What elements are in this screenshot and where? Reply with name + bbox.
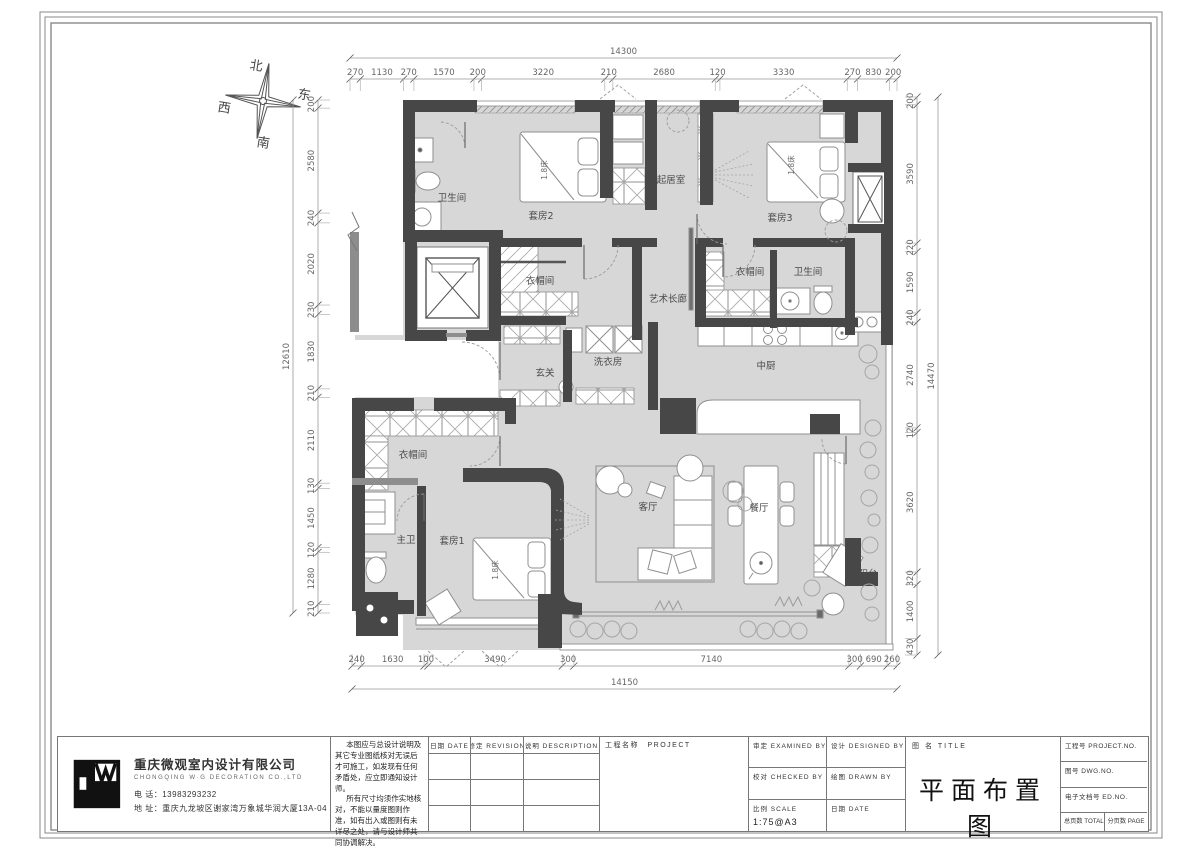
svg-text:270: 270 (347, 68, 363, 78)
ed-no-cell: 电子文档号 ED.NO. (1061, 788, 1147, 813)
total-page-cell: 总页数 TOTAL PAGE (1061, 813, 1105, 831)
rev-header-date: 日期 DATE (429, 737, 470, 754)
room-label: 主卫 (396, 534, 416, 546)
svg-text:830: 830 (865, 68, 881, 78)
svg-text:200: 200 (470, 68, 486, 78)
rev-col-description: 说明 DESCRIPTION (524, 737, 599, 831)
elevator-lobby-floor (352, 340, 498, 397)
rev-col-date: 日期 DATE (429, 737, 471, 831)
rev-col-revision: 修定 REVISION (471, 737, 524, 831)
room-label: 起居室 (657, 174, 686, 186)
suite3-chair (820, 199, 844, 223)
svg-text:120: 120 (307, 542, 317, 558)
company-address: 地 址：重庆九龙坡区谢家湾万象城华润大厦13A-04 (134, 803, 322, 814)
svg-text:2680: 2680 (653, 68, 675, 78)
svg-text:1570: 1570 (433, 68, 455, 78)
svg-text:14150: 14150 (611, 678, 638, 688)
svg-text:2740: 2740 (906, 364, 916, 386)
svg-text:1590: 1590 (906, 271, 916, 293)
svg-text:100: 100 (418, 655, 434, 665)
plan: 卫生间 套房2 衣帽间 起居室 套房3 衣帽间 卫生间 艺术长廊 洗衣房 玄关 … (282, 47, 942, 693)
scale-label: 比例 SCALE (753, 806, 797, 813)
rev-header-revision: 修定 REVISION (471, 737, 523, 754)
compass-south-label: 南 (256, 134, 271, 152)
room-label: 套房3 (767, 212, 792, 224)
bottom-glass-wall (560, 644, 893, 650)
drawing-title: 平面布置图 (906, 771, 1060, 843)
svg-text:14300: 14300 (610, 47, 637, 57)
rev-empty-row (471, 754, 523, 780)
date-cell: 日期 DATE (827, 800, 905, 831)
room-label: 卫生间 (438, 192, 467, 204)
svg-text:260: 260 (884, 655, 900, 665)
svg-text:2020: 2020 (307, 253, 317, 275)
approval-block: 审定 EXAMINED BY 设计 DESIGNED BY 校对 CHECKED… (749, 737, 906, 831)
svg-text:210: 210 (307, 601, 317, 617)
svg-text:270: 270 (401, 68, 417, 78)
svg-text:200: 200 (885, 68, 901, 78)
svg-text:2110: 2110 (307, 429, 317, 451)
dwg-no-cell: 图号 DWG.NO. (1061, 762, 1147, 787)
svg-text:120: 120 (709, 68, 725, 78)
svg-text:210: 210 (307, 385, 317, 401)
room-label: 卫生间 (794, 266, 823, 278)
svg-text:1830: 1830 (307, 341, 317, 363)
svg-text:3220: 3220 (532, 68, 554, 78)
room-label: 衣帽间 (399, 449, 428, 461)
room-label: 套房2 (528, 210, 553, 222)
drawn-by-cell: 绘图 DRAWN BY (827, 768, 905, 799)
svg-text:3490: 3490 (484, 655, 506, 665)
rev-empty-row (429, 754, 470, 780)
svg-text:230: 230 (307, 302, 317, 318)
svg-text:270: 270 (844, 68, 860, 78)
svg-text:240: 240 (307, 210, 317, 226)
svg-text:130: 130 (307, 478, 317, 494)
room-label: 洗衣房 (594, 356, 623, 368)
svg-text:2580: 2580 (307, 150, 317, 172)
project-no-cell: 工程号 PROJECT.NO. (1061, 737, 1147, 762)
rev-header-description: 说明 DESCRIPTION (524, 737, 599, 754)
room-label: 套房1 (439, 535, 464, 547)
compass-north-label: 北 (249, 58, 264, 75)
room-label: 阳台 (858, 568, 877, 580)
svg-text:200: 200 (307, 96, 317, 112)
revision-table: 日期 DATE 修定 REVISION 说明 DESCRIPTION (429, 737, 600, 831)
svg-text:200: 200 (906, 93, 916, 109)
room-label: 艺术长廊 (649, 293, 688, 305)
checked-by-cell: 校对 CHECKED BY (749, 768, 827, 799)
right-glass-wall (886, 344, 892, 644)
svg-text:12610: 12610 (282, 343, 292, 370)
room-label: 玄关 (535, 367, 555, 379)
general-notes: 本图应与总设计说明及其它专业图纸核对无误后才可施工，如发现有任何矛盾处，应立即通… (331, 737, 429, 831)
rev-empty-row (524, 806, 599, 831)
drawing-title-label: 图 名 TITLE (912, 741, 967, 751)
svg-text:300: 300 (847, 655, 863, 665)
art-wall-panel (689, 228, 693, 310)
numbers-block: 工程号 PROJECT.NO. 图号 DWG.NO. 电子文档号 ED.NO. … (1061, 737, 1147, 831)
company-name-en: CHONGQING W·G DECORATION CO.,LTD (134, 775, 322, 781)
svg-text:430: 430 (906, 639, 916, 655)
company-block: 重庆微观室内设计有限公司 CHONGQING W·G DECORATION CO… (58, 737, 331, 831)
room-label: 衣帽间 (526, 275, 555, 287)
svg-text:300: 300 (560, 655, 576, 665)
room-label: 餐厅 (749, 502, 769, 514)
svg-text:240: 240 (349, 655, 365, 665)
project-name-label: 工程名称 PROJECT (605, 742, 691, 749)
rev-empty-row (429, 780, 470, 806)
svg-text:1400: 1400 (906, 601, 916, 623)
bed-size-label: 1.8床 (490, 560, 500, 580)
svg-text:3620: 3620 (906, 491, 916, 513)
svg-text:1130: 1130 (371, 68, 393, 78)
svg-text:120: 120 (906, 422, 916, 438)
svg-text:3590: 3590 (906, 163, 916, 185)
note-line: 本图应与总设计说明及其它专业图纸核对无误后才可施工，如发现有任何矛盾处，应立即通… (335, 740, 424, 794)
svg-text:14470: 14470 (927, 362, 937, 389)
svg-text:1280: 1280 (307, 568, 317, 590)
svg-text:690: 690 (866, 655, 882, 665)
rev-empty-row (524, 754, 599, 780)
pages-cell: 总页数 TOTAL PAGE 分页数 PAGE (1061, 813, 1147, 831)
company-phone: 电 话：13983293232 (134, 789, 322, 800)
svg-text:320: 320 (906, 570, 916, 586)
elevator (417, 247, 488, 328)
svg-text:7140: 7140 (701, 655, 723, 665)
room-label: 客厅 (638, 501, 658, 513)
laundry-appliances (566, 326, 642, 353)
project-name-cell: 工程名称 PROJECT (600, 737, 749, 831)
compass: 北 东 西 南 (217, 58, 312, 152)
svg-text:3330: 3330 (773, 68, 795, 78)
scale-cell: 比例 SCALE 1:75@A3 (749, 800, 827, 831)
scale-value: 1:75@A3 (753, 817, 822, 827)
drawing-sheet: 北 东 西 南 (0, 0, 1200, 848)
bed-size-label: 1.8床 (539, 160, 549, 180)
floor-plan-drawing: 北 东 西 南 (0, 0, 1200, 848)
rev-empty-row (429, 806, 470, 831)
compass-west-label: 西 (217, 100, 232, 117)
svg-text:1450: 1450 (307, 507, 317, 529)
service-shaft (853, 172, 887, 226)
rev-empty-row (471, 780, 523, 806)
page-cell: 分页数 PAGE (1105, 813, 1148, 831)
svg-text:240: 240 (906, 309, 916, 325)
rev-empty-row (524, 780, 599, 806)
bed-size-label: 1.8床 (786, 155, 796, 175)
room-label: 中厨 (756, 360, 776, 372)
company-logo (66, 755, 124, 813)
svg-text:1630: 1630 (382, 655, 404, 665)
examined-by-cell: 审定 EXAMINED BY (749, 737, 827, 768)
drawing-title-cell: 图 名 TITLE 平面布置图 (906, 737, 1061, 831)
svg-text:220: 220 (906, 239, 916, 255)
svg-text:210: 210 (601, 68, 617, 78)
room-label: 衣帽间 (736, 266, 765, 278)
designed-by-cell: 设计 DESIGNED BY (827, 737, 905, 768)
note-line: 所有尺寸均须作实地核对，不能以量度图则作准，如有出入或图则有未详尽之处，请与设计… (335, 794, 424, 848)
rev-empty-row (471, 806, 523, 831)
company-name: 重庆微观室内设计有限公司 (134, 754, 322, 773)
title-block: 重庆微观室内设计有限公司 CHONGQING W·G DECORATION CO… (57, 736, 1149, 832)
